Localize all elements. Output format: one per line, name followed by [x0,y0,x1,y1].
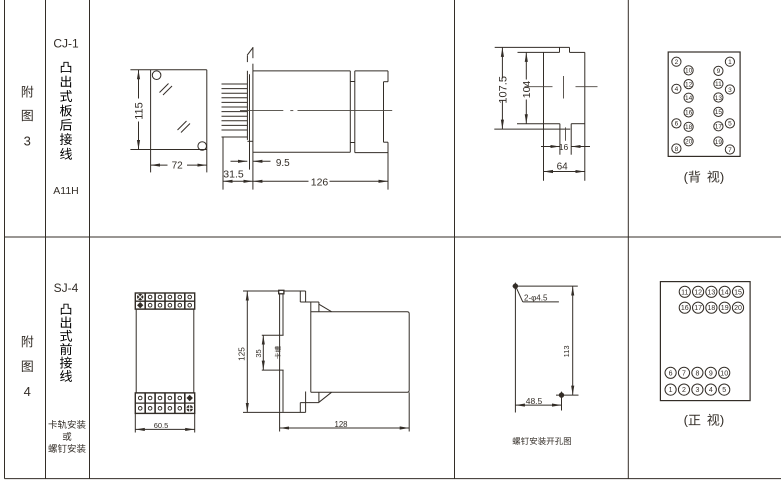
svg-text:2: 2 [675,59,679,66]
svg-text:115: 115 [134,102,146,120]
svg-text:1: 1 [728,59,732,66]
svg-text:31.5: 31.5 [223,168,244,180]
svg-text:113: 113 [562,345,571,357]
svg-text:128: 128 [334,420,347,429]
svg-text:SJ-4: SJ-4 [54,281,79,295]
svg-text:8: 8 [675,146,679,153]
svg-text:13: 13 [715,95,723,102]
svg-text:60.5: 60.5 [154,421,169,430]
svg-text:14: 14 [685,95,693,102]
svg-text:14: 14 [721,289,729,296]
svg-text:16: 16 [681,305,689,312]
svg-text:15: 15 [715,109,723,116]
svg-text:3: 3 [728,87,732,94]
svg-text:1: 1 [669,387,673,394]
svg-text:(: ( [684,170,689,185]
svg-text:4: 4 [675,86,679,93]
svg-text:10: 10 [685,68,693,75]
svg-text:CJ-1: CJ-1 [53,36,79,50]
svg-text:64: 64 [557,162,569,173]
svg-text:7: 7 [728,147,732,154]
svg-text:8: 8 [695,370,699,377]
svg-text:15: 15 [734,289,742,296]
svg-text:20: 20 [685,139,693,146]
svg-text:3: 3 [24,134,31,149]
svg-text:4: 4 [24,384,31,399]
svg-text:13: 13 [708,289,716,296]
svg-text:17: 17 [715,124,723,131]
svg-text:2: 2 [682,387,686,394]
svg-text:(: ( [684,413,689,428]
svg-text:3: 3 [695,387,699,394]
svg-text:2-φ4.5: 2-φ4.5 [524,294,548,303]
svg-text:19: 19 [715,139,723,146]
svg-text:11: 11 [715,81,722,88]
svg-text:5: 5 [728,121,732,128]
svg-text:19: 19 [721,305,729,312]
svg-text:9: 9 [709,370,713,377]
svg-text:18: 18 [708,305,716,312]
svg-text:6: 6 [669,370,673,377]
svg-text:6: 6 [675,121,679,128]
svg-text:10: 10 [720,370,728,377]
svg-text:125: 125 [238,347,247,361]
svg-text:9.5: 9.5 [276,158,290,169]
svg-text:16: 16 [559,142,569,152]
svg-text:A11H: A11H [53,185,79,197]
svg-text:16: 16 [685,110,693,117]
svg-text:): ) [720,413,724,428]
svg-text:12: 12 [685,81,693,88]
svg-text:17: 17 [694,305,702,312]
svg-text:18: 18 [685,124,693,131]
svg-text:104: 104 [521,81,533,99]
svg-text:48.5: 48.5 [526,396,543,406]
svg-text:107.5: 107.5 [497,76,509,104]
svg-text:9: 9 [717,68,721,75]
svg-text:72: 72 [172,161,184,172]
svg-text:4: 4 [709,387,713,394]
svg-text:7: 7 [682,370,686,377]
svg-text:126: 126 [311,177,329,189]
svg-text:35: 35 [254,349,263,357]
svg-text:20: 20 [734,305,742,312]
svg-text:): ) [720,170,724,185]
svg-text:11: 11 [681,289,688,296]
svg-text:12: 12 [694,289,702,296]
svg-text:5: 5 [722,387,726,394]
